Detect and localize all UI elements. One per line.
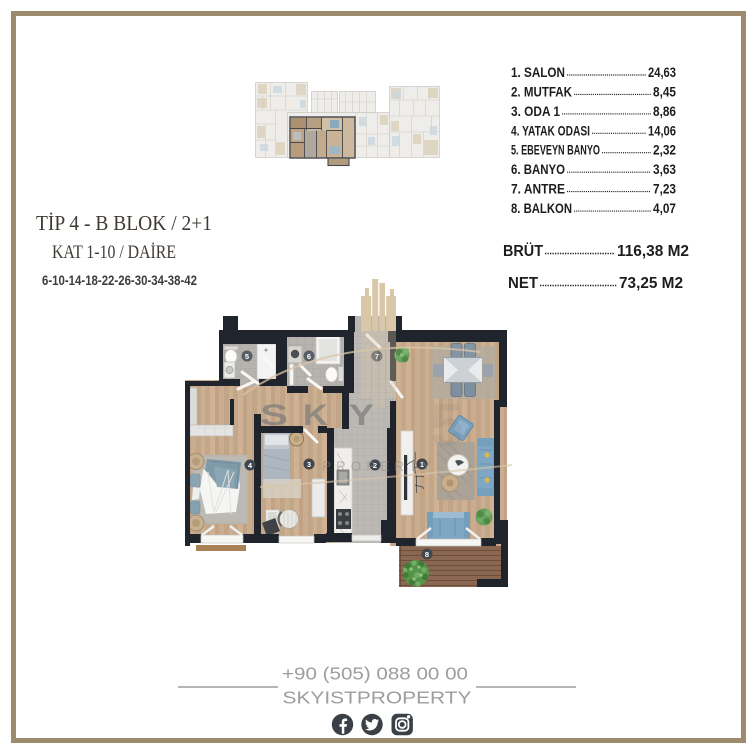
svg-text:8: 8 — [425, 550, 429, 559]
svg-text:5. EBEVEYN BANYO: 5. EBEVEYN BANYO — [511, 143, 600, 158]
svg-text:BRÜT: BRÜT — [503, 241, 543, 260]
svg-text:8,45: 8,45 — [653, 84, 676, 99]
svg-text:Y: Y — [349, 399, 374, 432]
svg-text:K: K — [303, 399, 328, 432]
svg-text:14,06: 14,06 — [648, 123, 676, 138]
svg-text:3. ODA 1: 3. ODA 1 — [511, 104, 560, 119]
svg-text:6: 6 — [307, 352, 311, 361]
svg-text:NET: NET — [508, 275, 538, 292]
svg-text:TİP 4 - B BLOK / 2+1: TİP 4 - B BLOK / 2+1 — [36, 211, 212, 235]
svg-text:7. ANTRE: 7. ANTRE — [511, 182, 565, 197]
svg-text:2. MUTFAK: 2. MUTFAK — [511, 84, 572, 99]
svg-text:5: 5 — [430, 392, 463, 459]
svg-text:4,07: 4,07 — [653, 201, 676, 216]
svg-text:5: 5 — [245, 352, 249, 361]
svg-text:7,23: 7,23 — [653, 182, 676, 197]
svg-text:S: S — [260, 399, 288, 432]
svg-text:4. YATAK ODASI: 4. YATAK ODASI — [511, 123, 590, 138]
svg-text:6. BANYO: 6. BANYO — [511, 162, 565, 177]
svg-text:24,63: 24,63 — [648, 65, 676, 80]
svg-text:6-10-14-18-22-26-30-34-38-42: 6-10-14-18-22-26-30-34-38-42 — [42, 273, 197, 288]
svg-text:3: 3 — [307, 460, 311, 469]
svg-text:2,32: 2,32 — [653, 143, 676, 158]
svg-text:1. SALON: 1. SALON — [511, 65, 565, 80]
svg-text:3,63: 3,63 — [653, 162, 676, 177]
svg-text:73,25 M2: 73,25 M2 — [619, 275, 683, 292]
svg-text:PROPERTY: PROPERTY — [322, 459, 436, 474]
svg-text:SKYISTPROPERTY: SKYISTPROPERTY — [283, 688, 472, 708]
svg-text:KAT 1-10 / DAİRE: KAT 1-10 / DAİRE — [52, 242, 176, 263]
svg-text:116,38 M2: 116,38 M2 — [617, 243, 689, 260]
svg-text:+90 (505) 088 00 00: +90 (505) 088 00 00 — [282, 664, 468, 684]
svg-text:8,86: 8,86 — [653, 104, 676, 119]
svg-text:8. BALKON: 8. BALKON — [511, 201, 572, 216]
